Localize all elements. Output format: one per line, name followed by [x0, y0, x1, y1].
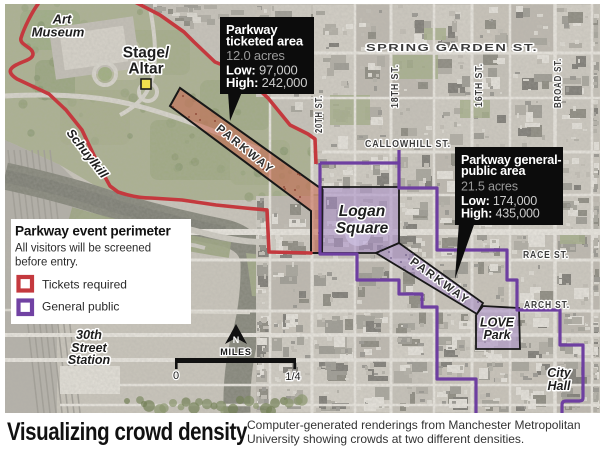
- svg-text:CALLOWHILL ST.: CALLOWHILL ST.: [365, 139, 451, 150]
- svg-text:Visualizing crowd density: Visualizing crowd density: [7, 417, 248, 445]
- svg-text:1/4: 1/4: [285, 371, 300, 383]
- svg-text:0: 0: [173, 370, 179, 382]
- svg-text:High: 435,000: High: 435,000: [461, 207, 540, 221]
- svg-text:Altar: Altar: [128, 61, 163, 78]
- svg-text:12.0 acres: 12.0 acres: [226, 48, 285, 63]
- svg-text:Museum: Museum: [32, 25, 85, 40]
- svg-text:High: 242,000: High: 242,000: [226, 75, 307, 90]
- svg-text:All visitors will be screened: All visitors will be screened: [15, 241, 151, 254]
- svg-text:BROAD ST.: BROAD ST.: [553, 58, 564, 108]
- svg-text:ARCH ST.: ARCH ST.: [524, 300, 570, 311]
- svg-text:before entry.: before entry.: [15, 255, 78, 268]
- svg-text:University showing crowds at t: University showing crowds at two differe…: [247, 432, 524, 446]
- svg-text:SPRING GARDEN ST.: SPRING GARDEN ST.: [366, 43, 538, 54]
- svg-text:Computer-generated renderings: Computer-generated renderings from Manch…: [247, 418, 581, 432]
- svg-text:City: City: [547, 366, 572, 380]
- svg-text:Tickets required: Tickets required: [42, 278, 127, 292]
- svg-text:Park: Park: [483, 328, 511, 342]
- svg-text:Station: Station: [68, 353, 111, 367]
- svg-text:20TH ST.: 20TH ST.: [314, 95, 325, 133]
- svg-text:General public: General public: [42, 300, 119, 314]
- svg-text:30th: 30th: [76, 328, 102, 342]
- svg-text:Hall: Hall: [548, 379, 571, 393]
- svg-text:Square: Square: [336, 220, 389, 237]
- svg-text:Stage/: Stage/: [123, 45, 170, 62]
- svg-text:Logan: Logan: [339, 203, 386, 220]
- svg-text:MILES: MILES: [220, 347, 252, 357]
- svg-text:RACE ST.: RACE ST.: [523, 250, 569, 261]
- svg-text:ticketed area: ticketed area: [226, 34, 304, 49]
- svg-text:18TH ST.: 18TH ST.: [390, 64, 401, 108]
- svg-text:16TH ST.: 16TH ST.: [474, 63, 485, 107]
- svg-text:public area: public area: [461, 164, 526, 178]
- svg-text:Parkway event perimeter: Parkway event perimeter: [15, 224, 172, 239]
- svg-text:N: N: [233, 335, 240, 345]
- svg-text:21.5 acres: 21.5 acres: [461, 180, 518, 194]
